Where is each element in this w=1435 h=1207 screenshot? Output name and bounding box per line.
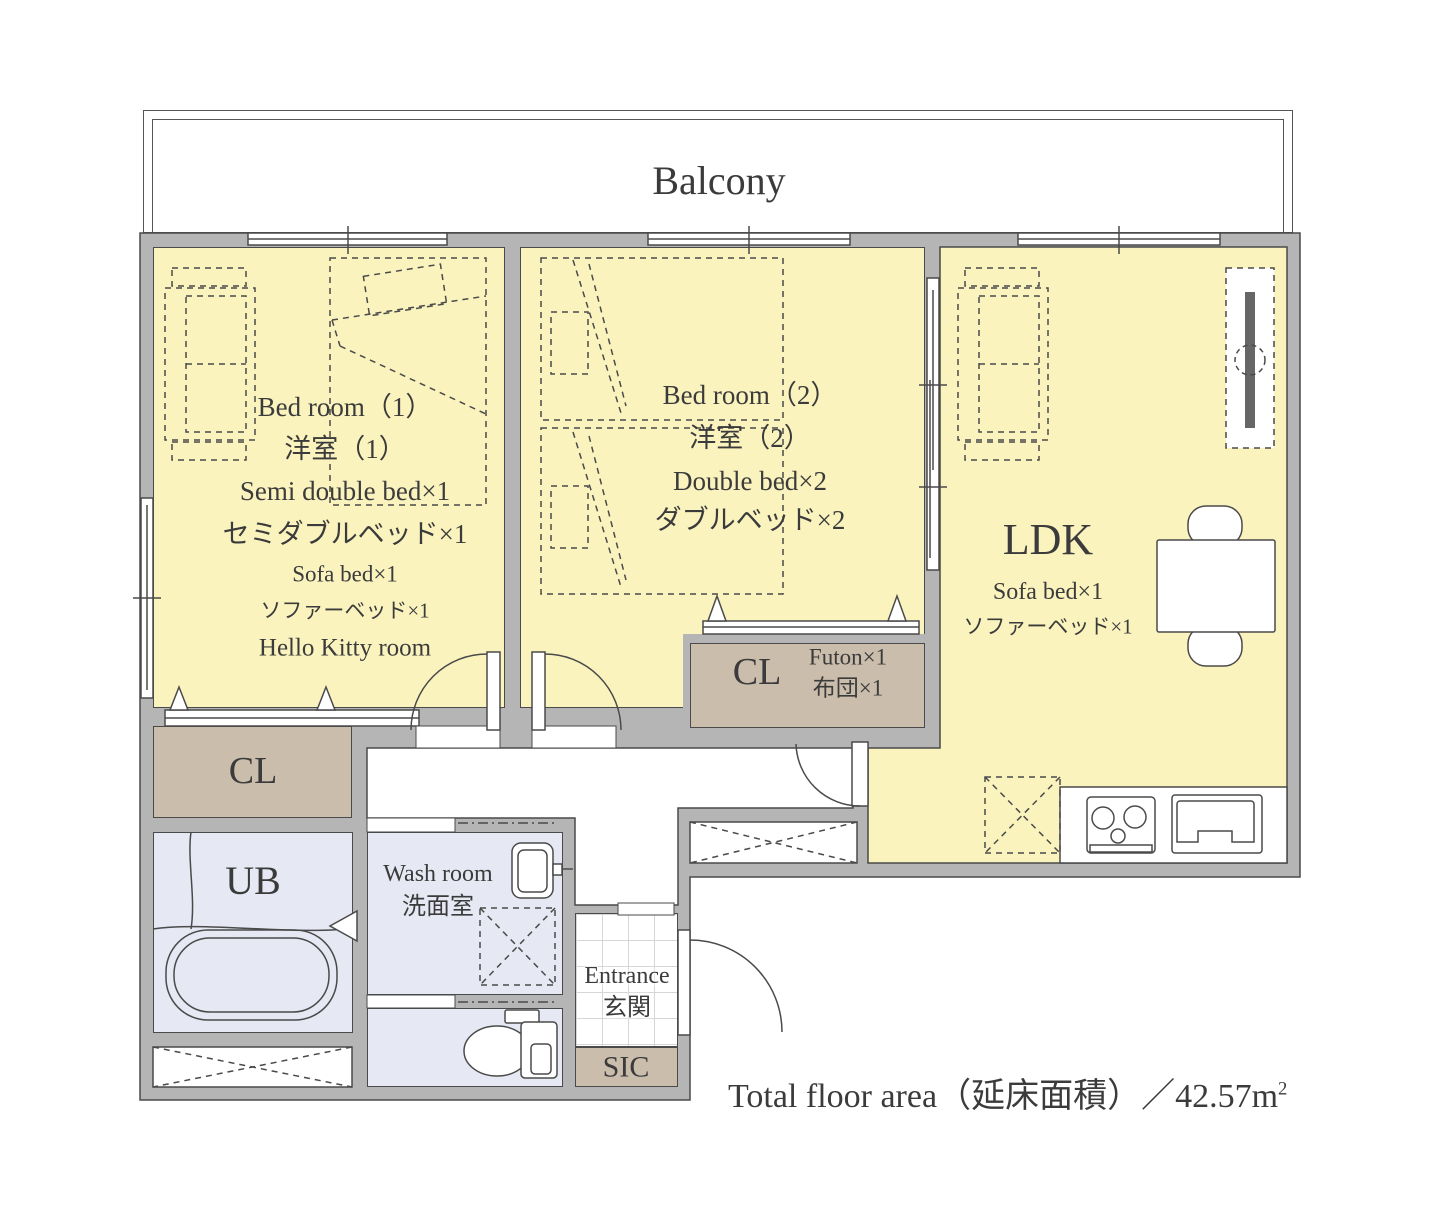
bedroom2-bed-en: Double bed×2	[673, 467, 827, 497]
bedroom1-bed-ja: セミダブルベッド×1	[223, 520, 468, 550]
entrance-name-en: Entrance	[584, 963, 669, 989]
total-floor-area-unit-exp: 2	[1278, 1079, 1287, 1100]
bedroom2-name-ja: 洋室（2）	[689, 424, 811, 454]
bedroom2-name-en: Bed room（2）	[663, 381, 838, 411]
toilet-room-floor	[367, 1008, 563, 1087]
bedroom1-note: Hello Kitty room	[259, 634, 431, 662]
closet-futon-label: CL	[733, 652, 782, 694]
ldk-sofa-ja: ソファーベッド×1	[963, 615, 1132, 638]
closet-futon-floor	[690, 643, 925, 728]
closet-futon-left-wall	[683, 634, 690, 748]
bedroom1-name-en: Bed room（1）	[258, 393, 433, 423]
bedroom2-bed-ja: ダブルベッド×2	[655, 506, 846, 536]
ldk-sofa-en: Sofa bed×1	[993, 579, 1103, 605]
closet-hall-label: CL	[229, 751, 278, 793]
bedroom1-sofa-ja: ソファーベッド×1	[260, 599, 429, 622]
door-entrance	[678, 930, 782, 1035]
total-floor-area: Total floor area（延床面積）／42.57m2	[728, 1068, 1287, 1117]
closet-futon-item-en: Futon×1	[809, 644, 887, 669]
unit-bath-label: UB	[225, 859, 281, 903]
balcony-label: Balcony	[652, 159, 785, 203]
bedroom1-sofa-en: Sofa bed×1	[292, 561, 398, 586]
closet-futon-top-wall	[683, 634, 933, 643]
shoe-closet-label: SIC	[603, 1051, 650, 1084]
bedroom1-name-ja: 洋室（1）	[284, 435, 406, 465]
closet-futon-item-ja: 布団×1	[813, 675, 883, 700]
ldk-label: LDK	[1003, 516, 1093, 564]
entrance-name-ja: 玄関	[603, 995, 651, 1021]
bedroom1-bed-en: Semi double bed×1	[240, 477, 450, 507]
total-floor-area-unit: m	[1252, 1078, 1278, 1115]
washroom-name-ja: 洗面室	[402, 894, 474, 920]
total-floor-area-text: Total floor area（延床面積）／42.57	[728, 1078, 1252, 1115]
floor-plan: Balcony Bed room（1） 洋室（1） Semi double be…	[0, 0, 1435, 1207]
washroom-name-en: Wash room	[383, 861, 492, 887]
